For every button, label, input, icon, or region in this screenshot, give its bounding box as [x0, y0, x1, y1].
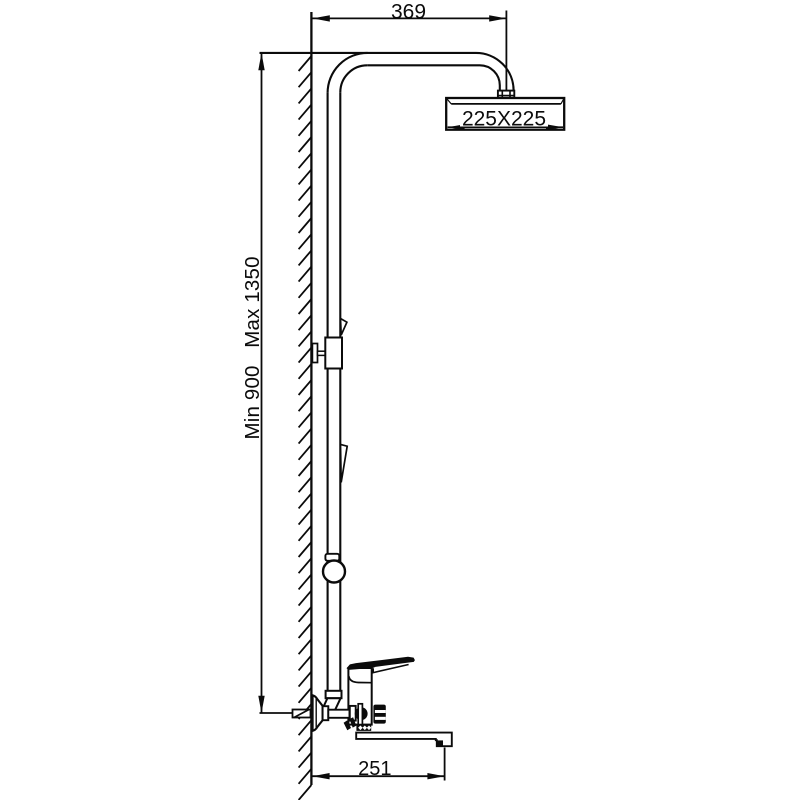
svg-text:225X225: 225X225: [462, 108, 546, 131]
svg-text:Min 900 Max 1350: Min 900 Max 1350: [241, 257, 264, 440]
svg-text:251: 251: [358, 758, 391, 780]
svg-text:369: 369: [391, 1, 426, 24]
